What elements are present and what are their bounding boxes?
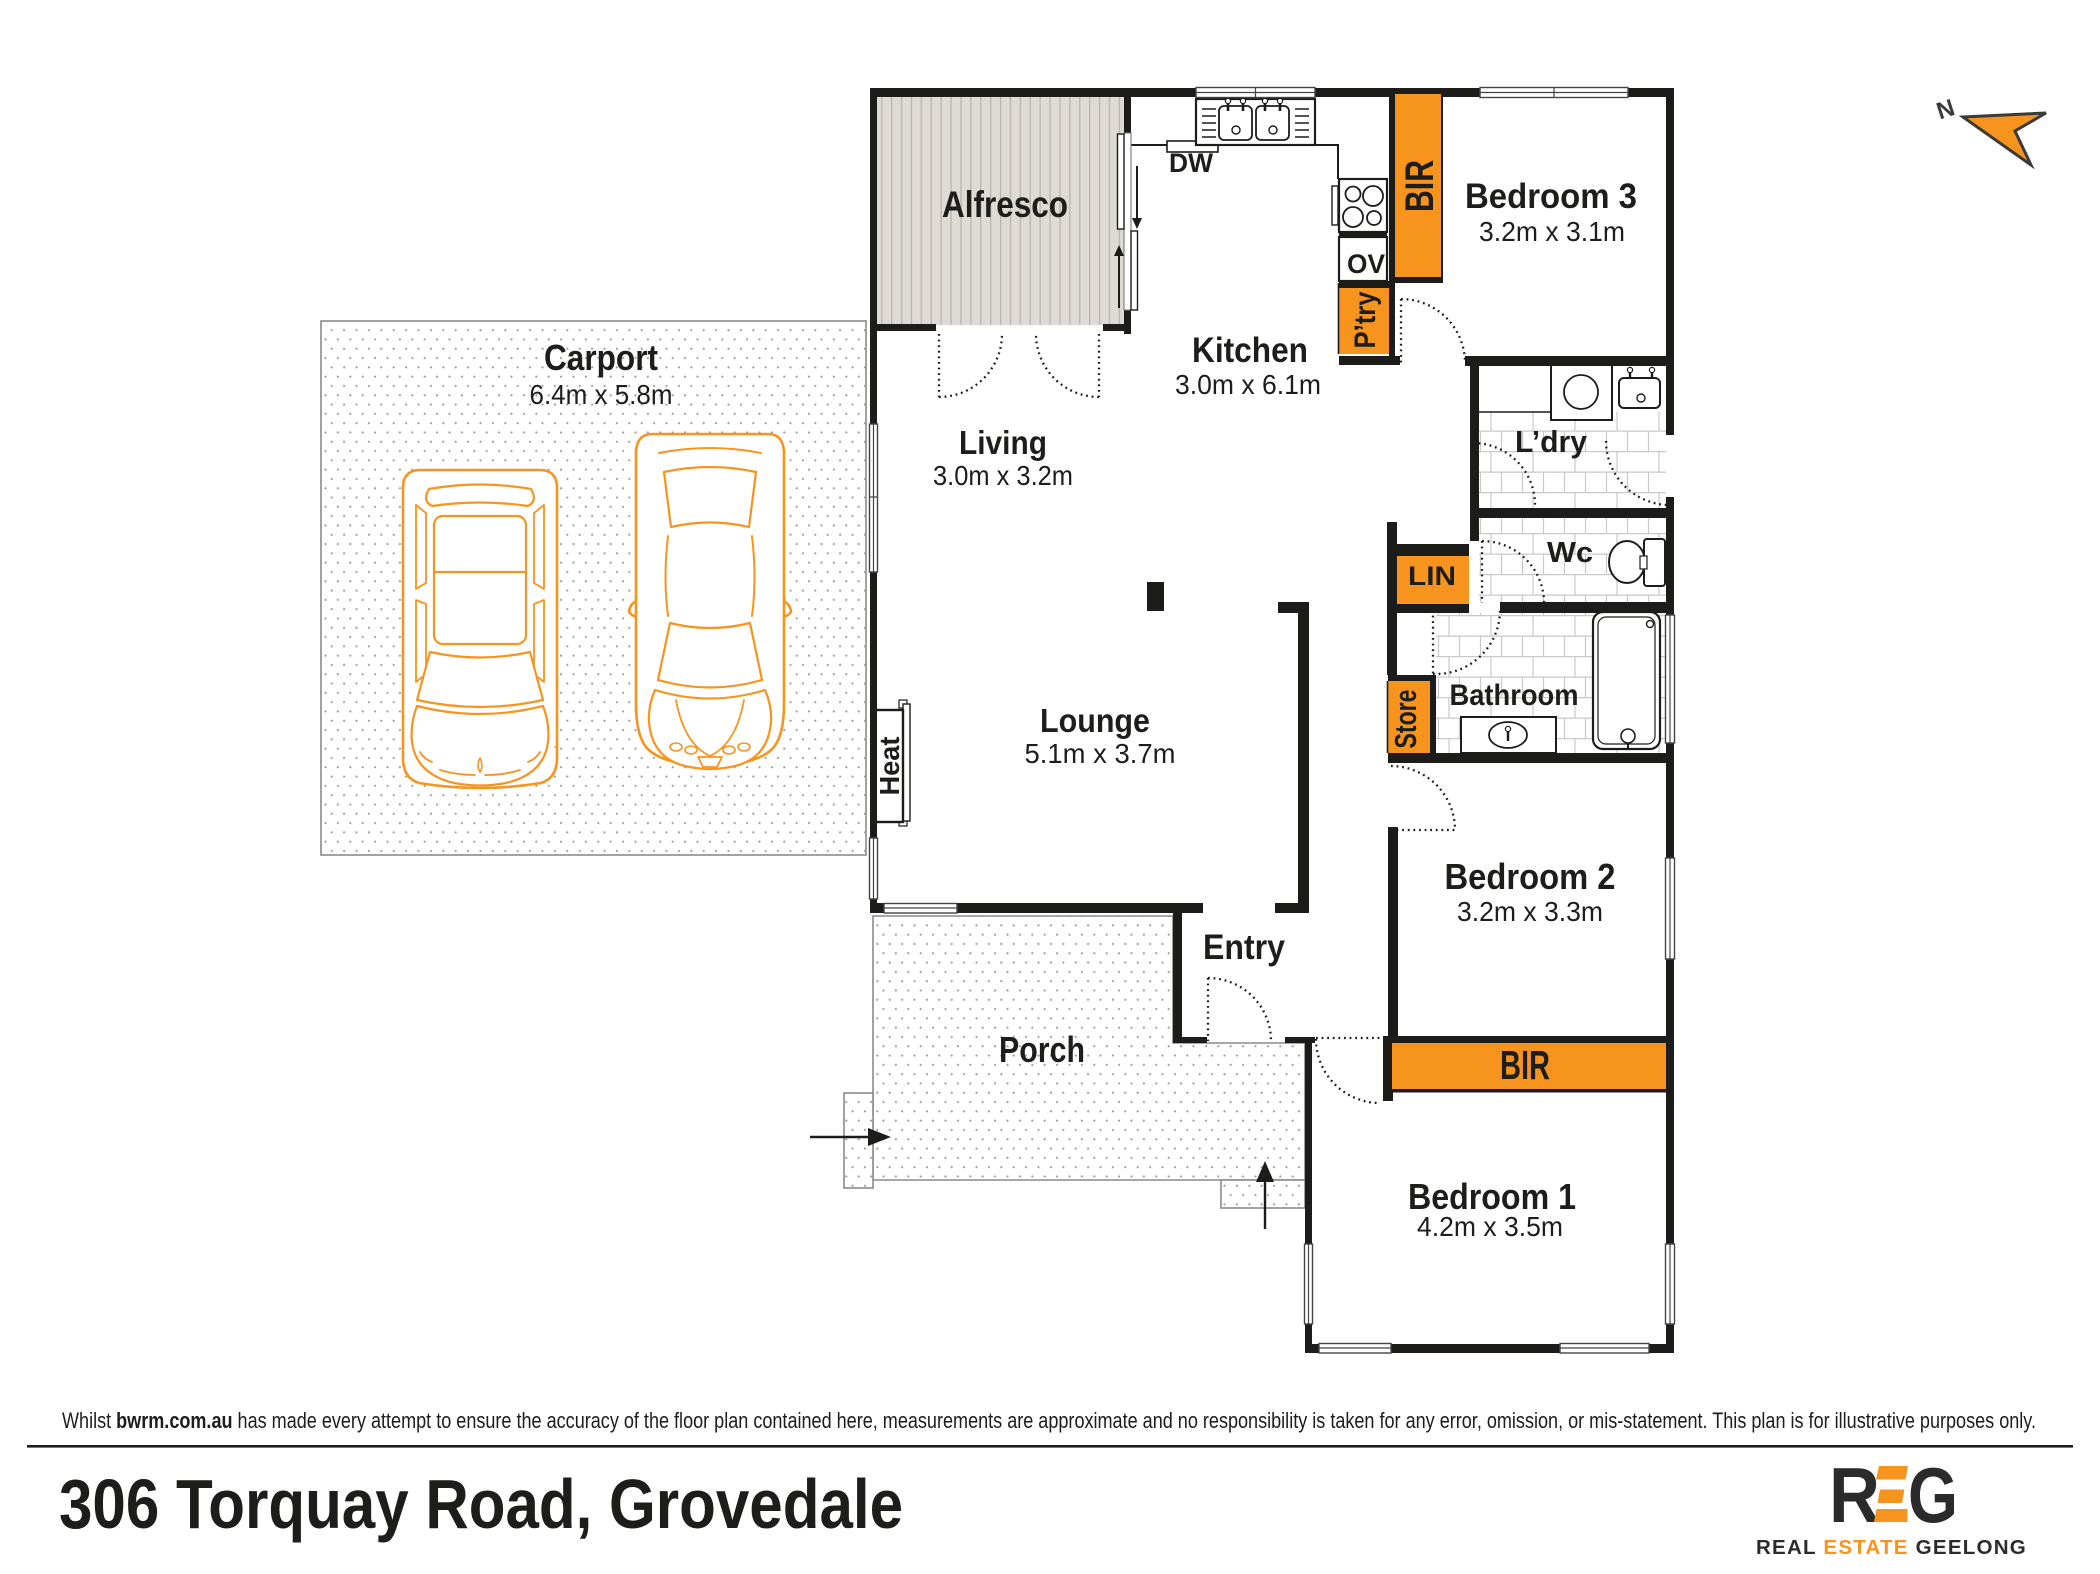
- svg-text:Bedroom 3: Bedroom 3: [1465, 177, 1637, 216]
- svg-text:P’try: P’try: [1349, 291, 1382, 348]
- svg-text:3.2m x 3.3m: 3.2m x 3.3m: [1457, 896, 1603, 927]
- svg-text:R: R: [1829, 1451, 1880, 1539]
- svg-text:3.0m x 6.1m: 3.0m x 6.1m: [1175, 369, 1321, 400]
- svg-text:5.1m x 3.7m: 5.1m x 3.7m: [1025, 738, 1176, 769]
- svg-text:DW: DW: [1169, 148, 1214, 178]
- svg-text:G: G: [1908, 1451, 1958, 1539]
- svg-text:OV: OV: [1347, 249, 1385, 279]
- svg-text:Bathroom: Bathroom: [1450, 679, 1579, 712]
- svg-text:L’dry: L’dry: [1515, 424, 1588, 459]
- svg-text:Wc: Wc: [1547, 537, 1593, 569]
- svg-text:REAL ESTATE GEELONG: REAL ESTATE GEELONG: [1756, 1537, 2027, 1559]
- svg-text:LIN: LIN: [1408, 561, 1456, 591]
- svg-text:Store: Store: [1388, 690, 1423, 749]
- svg-text:Whilst bwrm.com.au has made ev: Whilst bwrm.com.au has made every attemp…: [62, 1408, 2036, 1433]
- svg-text:3.0m x 3.2m: 3.0m x 3.2m: [933, 460, 1073, 491]
- svg-text:BIR: BIR: [1398, 160, 1442, 212]
- svg-text:Carport: Carport: [544, 337, 658, 378]
- svg-text:306 Torquay Road, Grovedale: 306 Torquay Road, Grovedale: [59, 1465, 903, 1543]
- svg-text:Lounge: Lounge: [1040, 702, 1150, 739]
- svg-text:Living: Living: [959, 424, 1047, 461]
- svg-text:3.2m x 3.1m: 3.2m x 3.1m: [1479, 216, 1625, 247]
- svg-text:Alfresco: Alfresco: [942, 184, 1068, 225]
- svg-text:Porch: Porch: [999, 1029, 1085, 1070]
- svg-text:Bedroom 2: Bedroom 2: [1445, 856, 1616, 897]
- svg-text:6.4m x 5.8m: 6.4m x 5.8m: [530, 379, 673, 410]
- svg-text:Kitchen: Kitchen: [1192, 331, 1308, 370]
- svg-text:4.2m x 3.5m: 4.2m x 3.5m: [1417, 1211, 1563, 1242]
- svg-text:Heat: Heat: [874, 737, 905, 796]
- svg-text:BIR: BIR: [1500, 1042, 1550, 1088]
- svg-text:Entry: Entry: [1203, 928, 1285, 967]
